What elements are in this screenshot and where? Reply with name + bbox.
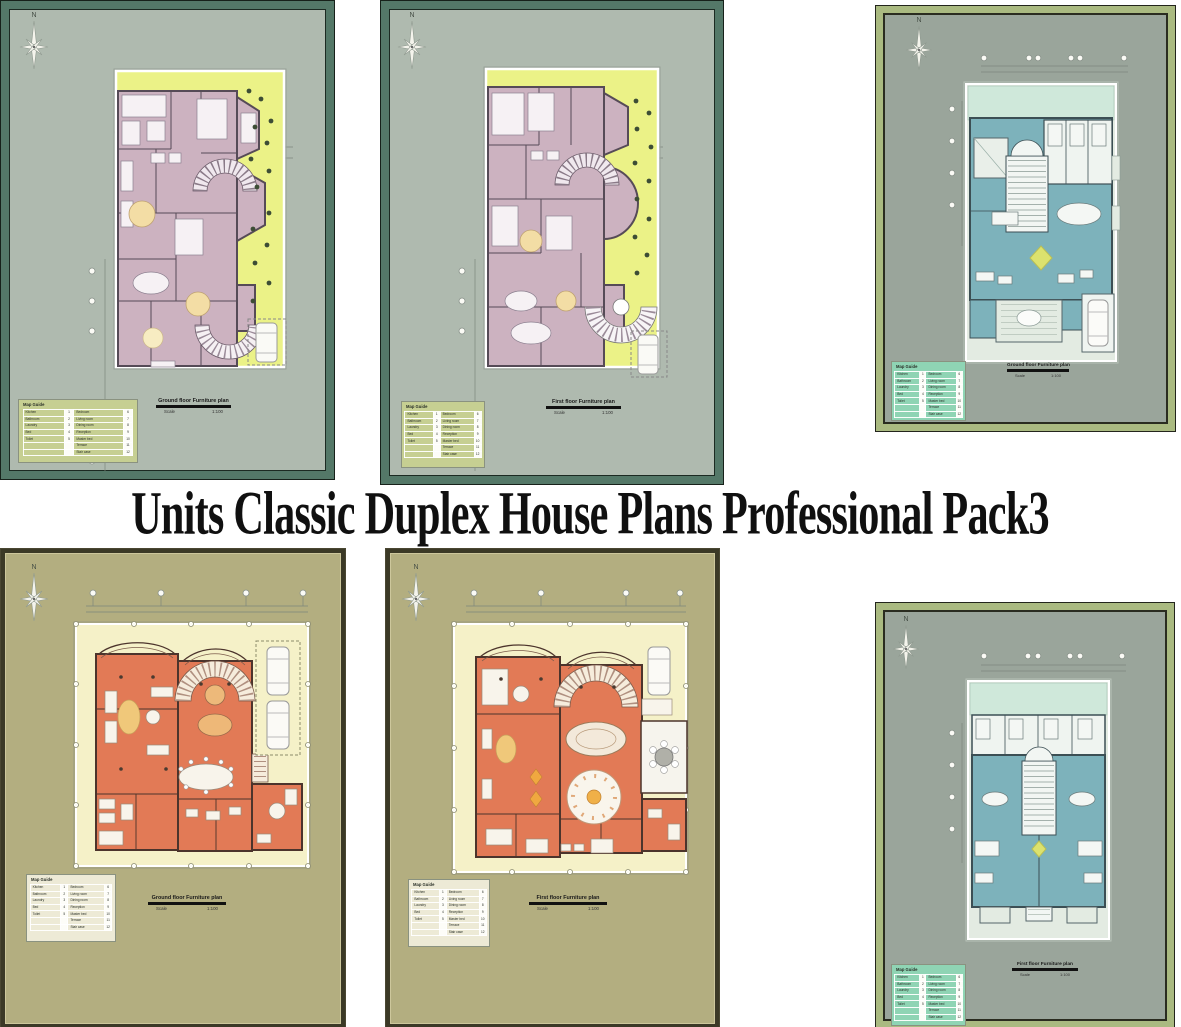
porch — [996, 300, 1062, 342]
compass-rose-icon: N — [893, 616, 919, 669]
title-band: Units Classic Duplex House Plans Profess… — [0, 476, 1181, 550]
floor-plan-drawing: N — [1, 549, 345, 1027]
plan-caption: Ground floor Furniture plan Scale1:100 — [156, 398, 231, 414]
svg-text:N: N — [903, 616, 908, 623]
building — [972, 715, 1105, 923]
map-guide-legend: Map GuideKitchen1Bedroom6Bathroom2Living… — [401, 401, 485, 468]
map-guide-legend: Map GuideKitchen1Bedroom6Bathroom2Living… — [408, 879, 490, 947]
svg-text:N: N — [916, 17, 921, 24]
dimension-markers — [86, 590, 308, 612]
collage-title: Units Classic Duplex House Plans Profess… — [132, 478, 1050, 548]
compass-rose-icon: N — [20, 564, 48, 621]
plan-caption: First floor Furniture plan Scale1:100 — [529, 895, 607, 911]
plan-caption: Ground floor Furniture plan Scale1:100 — [1007, 363, 1069, 378]
floor-plan-sheet-top-middle: N — [380, 0, 724, 485]
svg-text:N: N — [413, 564, 418, 571]
map-guide-legend: Map GuideKitchen1Bedroom6Bathroom2Living… — [26, 874, 116, 942]
building — [970, 118, 1120, 352]
plan-caption: Ground floor Furniture plan Scale1:100 — [148, 895, 226, 911]
compass-rose-icon: N — [906, 17, 932, 70]
map-guide-legend: Map GuideKitchen1Bedroom6Bathroom2Living… — [891, 361, 966, 421]
parking — [256, 641, 300, 755]
floor-plan-sheet-bottom-right: N — [875, 602, 1175, 1027]
floor-plan-sheet-bottom-middle: N — [385, 548, 720, 1027]
floor-plan-sheet-top-left: N — [0, 0, 335, 480]
dimension-markers — [466, 590, 686, 612]
building — [476, 645, 687, 857]
floor-plan-sheet-top-right: N — [875, 5, 1176, 432]
plan-collage: Units Classic Duplex House Plans Profess… — [0, 0, 1181, 1027]
floor-plan-sheet-bottom-left: N — [0, 548, 346, 1027]
round-floor — [567, 770, 621, 824]
car — [1082, 294, 1114, 352]
plan-caption: First floor Furniture plan Scale1:100 — [546, 399, 621, 415]
compass-rose-icon: N — [20, 12, 48, 69]
car — [648, 647, 670, 695]
floor-plan-drawing: N — [386, 549, 719, 1027]
round-table-room — [641, 721, 687, 793]
compass-rose-icon: N — [398, 12, 426, 69]
svg-text:N: N — [31, 564, 36, 571]
central-staircase — [1022, 747, 1056, 835]
building — [96, 641, 302, 851]
balconies — [980, 907, 1097, 923]
plan-caption: First floor Furniture plan Scale1:100 — [1012, 962, 1078, 977]
compass-rose-icon: N — [402, 564, 430, 621]
svg-text:N: N — [31, 12, 36, 19]
map-guide-legend: Map GuideKitchen1Bedroom6Bathroom2Living… — [18, 399, 138, 463]
map-guide-legend: Map GuideKitchen1Bedroom6Bathroom2Living… — [891, 964, 966, 1026]
svg-text:N: N — [409, 12, 414, 19]
